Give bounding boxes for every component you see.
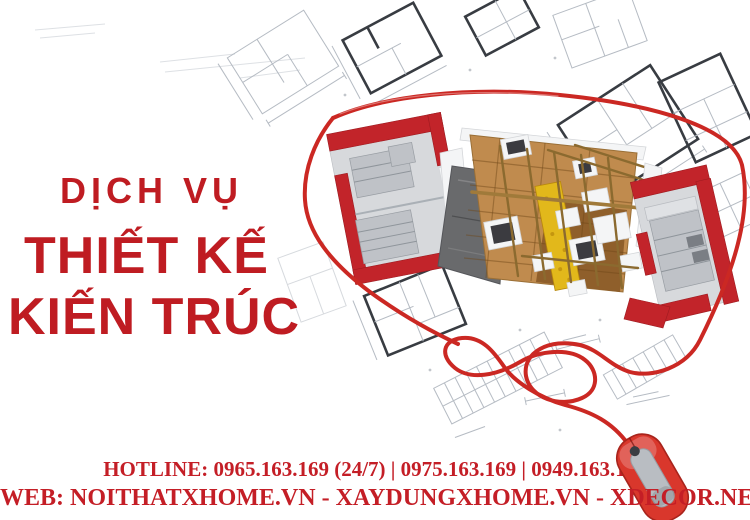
- ad-banner: { "meta": { "description_vi": "Quang cao…: [0, 0, 750, 520]
- computer-mouse-icon: [0, 0, 750, 520]
- web-text: WEB: NOITHATXHOME.VN - XAYDUNGXHOME.VN -…: [0, 485, 750, 512]
